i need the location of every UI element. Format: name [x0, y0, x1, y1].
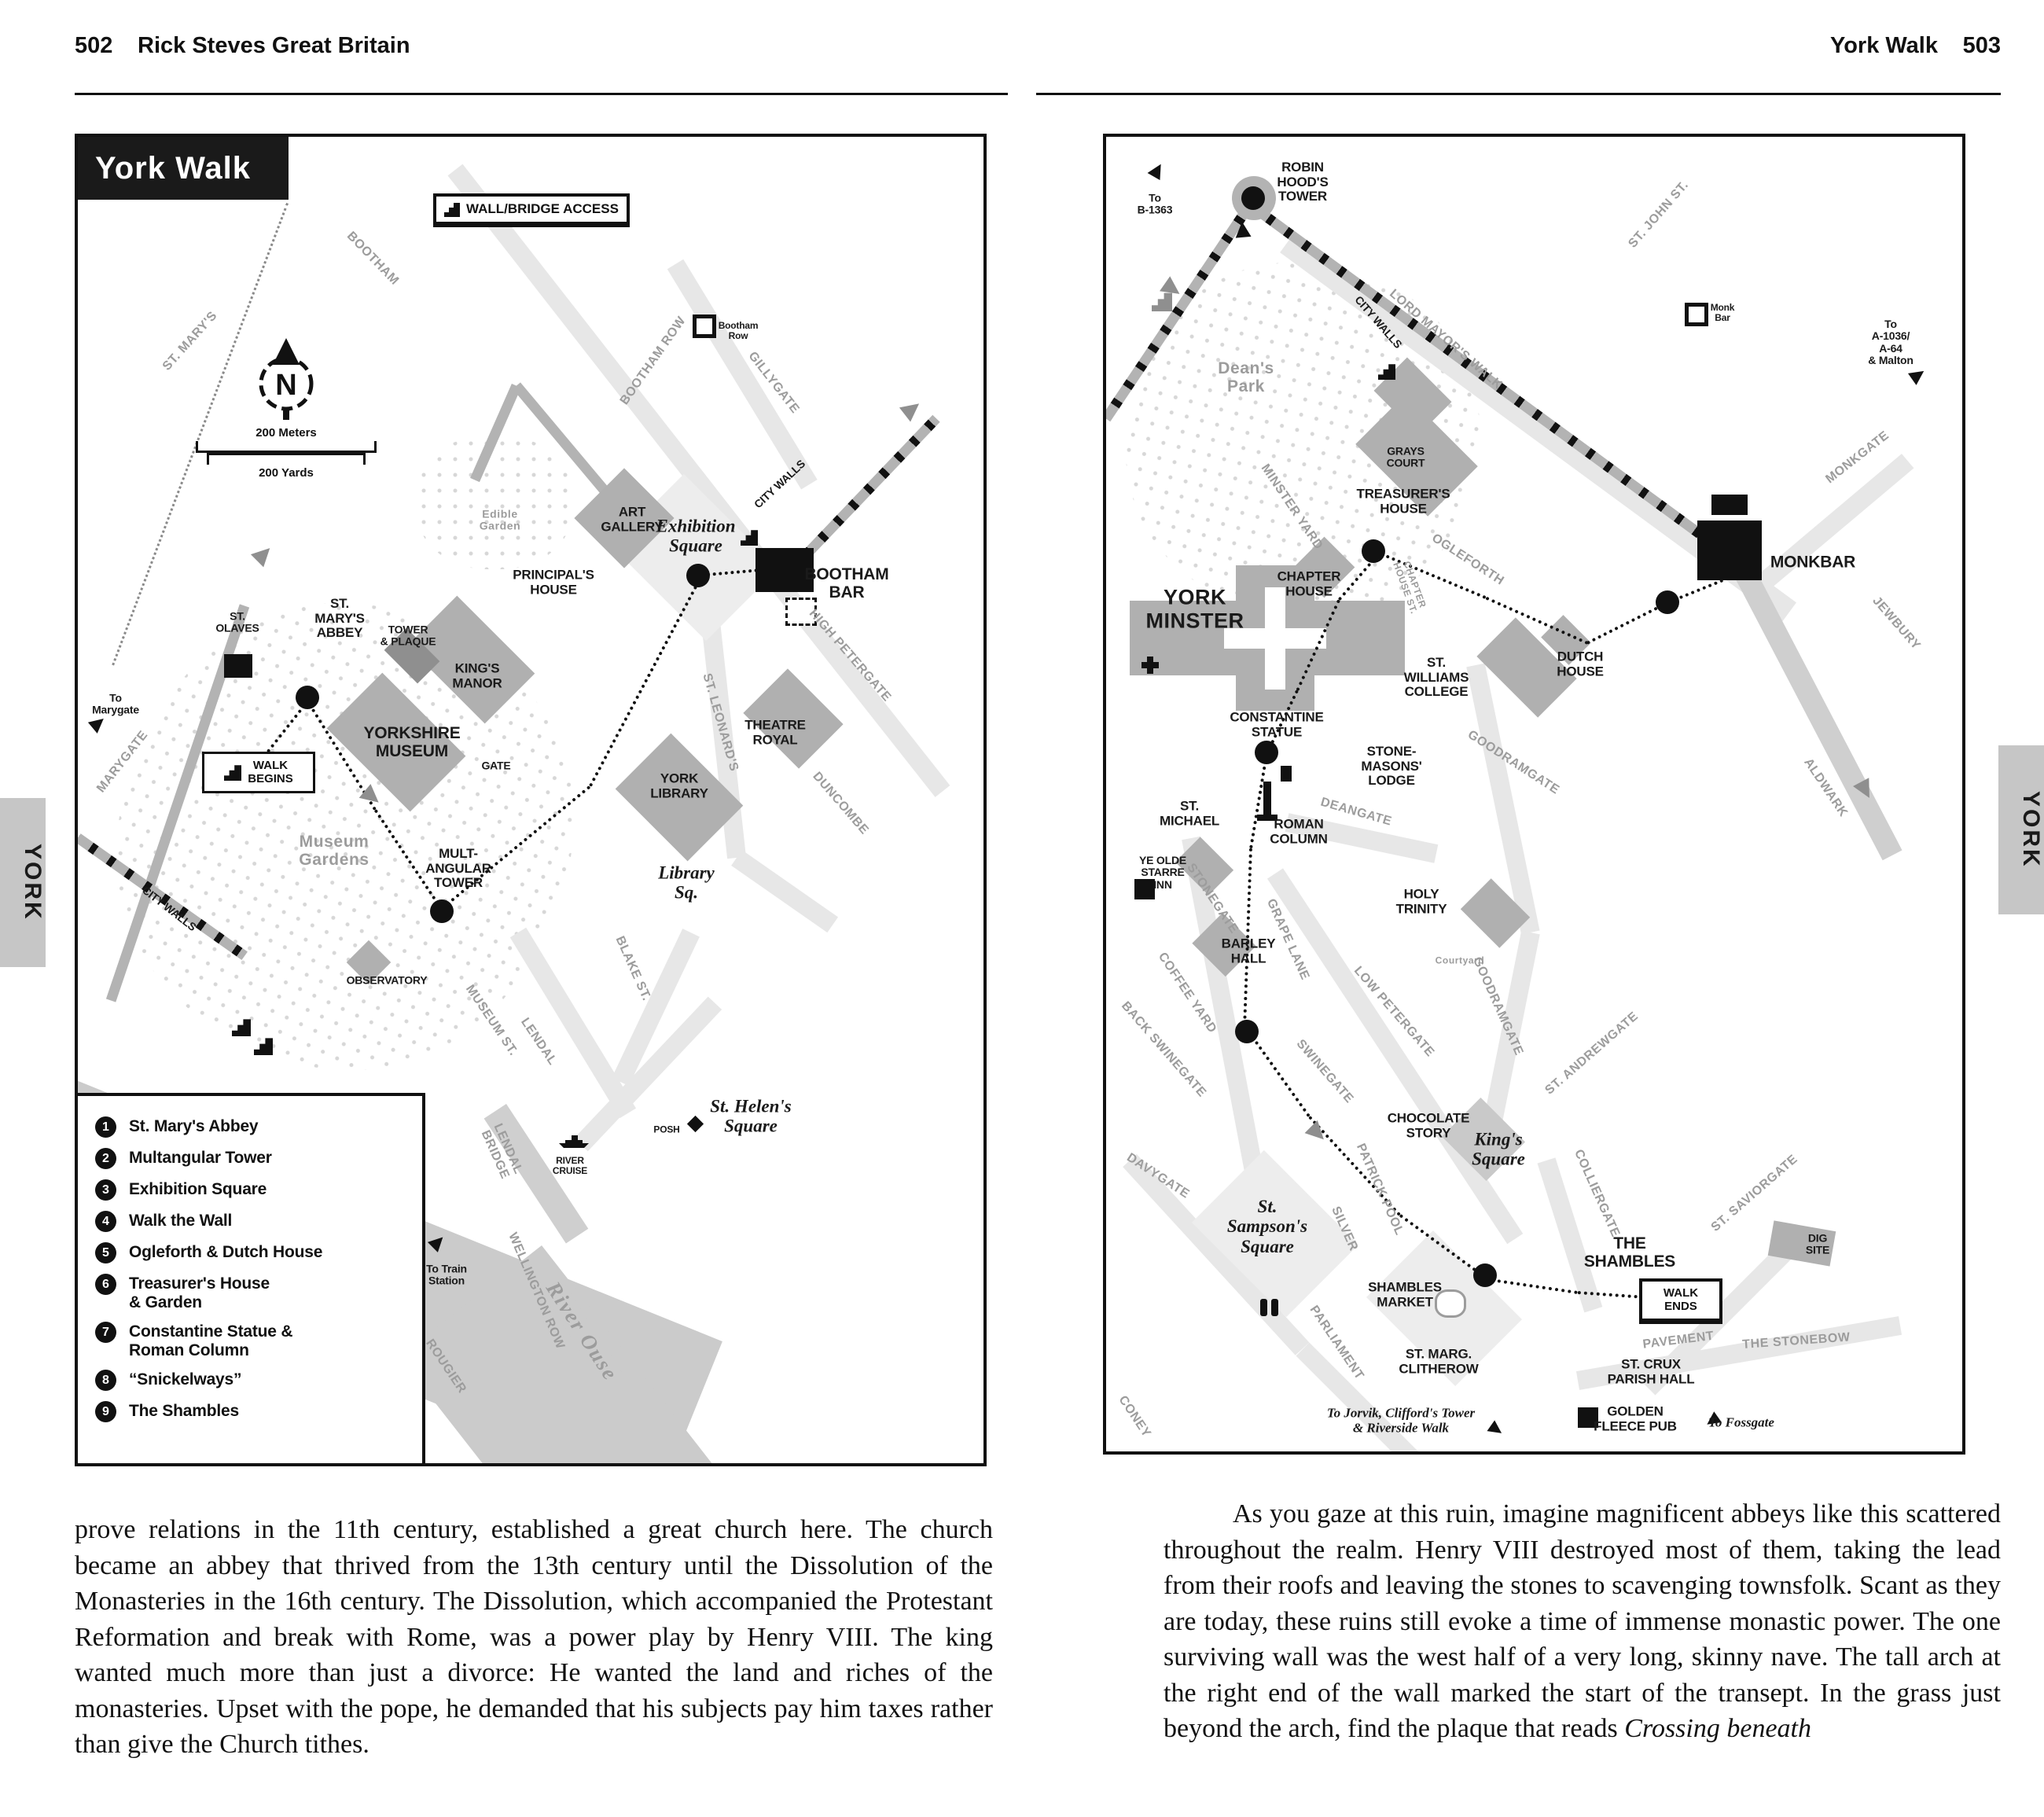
map-label: COLLIERGATE — [1572, 1148, 1623, 1240]
map-label: BLAKE ST. — [612, 934, 653, 1003]
map-label: CONEY — [1116, 1393, 1153, 1440]
map-label: SHAMBLES MARKET — [1368, 1280, 1442, 1309]
map-label: ST. MARY'S ABBEY — [314, 597, 365, 641]
map-label: CONSTANTINE STATUE — [1230, 710, 1323, 739]
legend-item-label: Ogleforth & Dutch House — [129, 1242, 322, 1262]
paragraph-text: As you gaze at this ruin, imagine magnif… — [1164, 1499, 2001, 1743]
map-legend: 1St. Mary's Abbey2Multangular Tower3Exhi… — [78, 1093, 425, 1466]
map-label: ST. MARY'S — [160, 309, 220, 373]
legend-item-label: Treasurer's House & Garden — [129, 1274, 270, 1311]
road-duncombe — [731, 850, 838, 932]
st-olaves-church-icon — [224, 654, 252, 678]
legend-item: 5Ogleforth & Dutch House — [95, 1242, 408, 1263]
legend-number-badge: 9 — [95, 1401, 116, 1422]
legend-item: 6Treasurer's House & Garden — [95, 1274, 408, 1311]
map-label: To A-1036/ A-64 & Malton — [1868, 318, 1913, 367]
walk-stop-dot — [1362, 539, 1385, 563]
walk-stop-dot — [296, 686, 319, 709]
map-label: YORK MINSTER — [1146, 586, 1244, 632]
book-title: Rick Steves Great Britain — [138, 35, 410, 57]
map-label: THEATRE ROYAL — [744, 718, 806, 747]
map-label: Monk Bar — [1711, 303, 1735, 323]
walk-stop-dot — [1255, 741, 1278, 764]
legend-item: 7Constantine Statue & Roman Column — [95, 1322, 408, 1359]
map-label: ST. JOHN ST. — [1626, 178, 1691, 251]
legend-item-label: The Shambles — [129, 1401, 239, 1421]
map-label: THE SHAMBLES — [1584, 1234, 1675, 1271]
legend-number-badge: 2 — [95, 1148, 116, 1169]
route-direction-arrow-icon: ▶ — [1302, 1116, 1334, 1148]
side-tab-left: YORK — [0, 798, 46, 967]
map-label: ST. CRUX PARISH HALL — [1608, 1357, 1695, 1386]
legend-item: 1St. Mary's Abbey — [95, 1116, 408, 1138]
map-label: DIG SITE — [1806, 1233, 1829, 1257]
walk-stop-dot — [1656, 590, 1679, 614]
map-label: To Fossgate — [1708, 1416, 1774, 1431]
legend-item-label: Walk the Wall — [129, 1211, 232, 1230]
map-label: OBSERVATORY — [347, 974, 428, 986]
map-label: TREASURER'S HOUSE — [1357, 487, 1450, 516]
scale-yards-label: 200 Yards — [196, 467, 377, 479]
map-label: HOLY TRINITY — [1396, 887, 1447, 916]
wall-access-legend-text: WALL/BRIDGE ACCESS — [466, 201, 619, 217]
map-label: CHOCOLATE STORY — [1388, 1111, 1470, 1140]
to-b1363-arrow-icon: ▶ — [1143, 158, 1170, 182]
scale-meters-label: 200 Meters — [196, 427, 377, 439]
map-label: ROMAN COLUMN — [1270, 817, 1327, 846]
map-label: YORK LIBRARY — [650, 771, 708, 800]
side-tab-right: YORK — [1998, 745, 2044, 914]
monkbar-building — [1697, 520, 1762, 580]
map-label: MULT- ANGULAR TOWER — [425, 847, 491, 891]
wall-access-stairs-icon — [741, 528, 758, 546]
car-park-icon — [693, 314, 716, 338]
map-label: TOWER & PLAQUE — [380, 624, 436, 649]
edible-garden-area — [416, 436, 573, 569]
map-label: KING'S MANOR — [452, 661, 502, 690]
legend-number-badge: 8 — [95, 1370, 116, 1391]
map-label: POSH — [653, 1124, 679, 1135]
restrooms-icon — [1260, 1299, 1282, 1320]
church-icon — [687, 1116, 704, 1132]
map-label: JEWBURY — [1869, 594, 1923, 653]
map-label: GOODRAMGATE — [1465, 728, 1562, 797]
legend-number-badge: 7 — [95, 1322, 116, 1343]
legend-number-badge: 4 — [95, 1211, 116, 1232]
plaque-inscription: Crossing beneath — [1624, 1714, 1811, 1743]
map-label: BARLEY HALL — [1222, 936, 1276, 966]
map-scale: 200 Meters 200 Yards — [196, 425, 377, 481]
wall-access-stairs-icon — [444, 201, 460, 217]
map-label: GATE — [481, 760, 510, 771]
to-jorvik-arrow-icon: ▶ — [1486, 1416, 1509, 1440]
map-label: DUTCH HOUSE — [1557, 649, 1603, 679]
paragraph: As you gaze at this ruin, imagine magnif… — [1164, 1496, 2001, 1747]
walk-begins-stairs-icon — [224, 763, 241, 781]
walk-stop-dot — [1473, 1263, 1497, 1287]
car-park-icon — [1685, 303, 1708, 326]
map-label: BOOTHAM ROW — [618, 314, 689, 408]
minster-west-cross-icon — [1147, 657, 1153, 674]
walk-stop-dot — [1235, 1020, 1259, 1043]
map-label: MONKBAR — [1770, 553, 1855, 571]
walk-begins-text: WALK BEGINS — [248, 759, 293, 786]
map-label: ART GALLERY — [601, 505, 663, 534]
body-text-left-column: prove relations in the 11th century, est… — [75, 1512, 993, 1763]
map-title: York Walk — [78, 137, 289, 200]
map-label: DUNCOMBE — [810, 770, 871, 837]
compass-icon: N — [252, 335, 320, 421]
walk-ends-text: WALK ENDS — [1664, 1286, 1698, 1314]
paragraph: prove relations in the 11th century, est… — [75, 1512, 993, 1763]
chapter-title: York Walk — [1830, 35, 1938, 57]
map-label: BOOTHAM — [344, 230, 402, 289]
scale-bar-meters — [196, 441, 377, 453]
monkbar-turret — [1711, 495, 1748, 515]
legend-item: 2Multangular Tower — [95, 1148, 408, 1169]
map-label: PRINCIPAL'S HOUSE — [513, 568, 594, 597]
map-label: To B-1363 — [1138, 193, 1173, 217]
wall-access-legend: WALL/BRIDGE ACCESS — [433, 193, 630, 225]
legend-number-badge: 6 — [95, 1274, 116, 1295]
route-direction-arrow-icon: ▶ — [246, 537, 278, 569]
map-label: St. Sampson's Square — [1227, 1197, 1307, 1256]
legend-item-label: “Snickelways” — [129, 1370, 241, 1389]
legend-item: 3Exhibition Square — [95, 1179, 408, 1201]
body-text-right-column: As you gaze at this ruin, imagine magnif… — [1164, 1496, 2001, 1747]
map-label: STONE- MASONS' LODGE — [1361, 745, 1421, 789]
map-label: ST. MARG. CLITHEROW — [1399, 1347, 1478, 1376]
wall-direction-arrow-icon: ▶ — [1229, 221, 1255, 239]
legend-item-label: Constantine Statue & Roman Column — [129, 1322, 292, 1359]
map-label: To Marygate — [92, 693, 139, 717]
legend-item-label: Multangular Tower — [129, 1148, 272, 1168]
header-rule-left — [75, 93, 1008, 95]
map-label: YORKSHIRE MUSEUM — [363, 724, 460, 760]
river-cruise-boat-icon — [559, 1132, 589, 1148]
wall-access-stairs-icon — [254, 1036, 273, 1055]
legend-item: 8“Snickelways” — [95, 1370, 408, 1391]
map-label: SWINEGATE — [1293, 1037, 1356, 1106]
map-label: King's Square — [1472, 1130, 1525, 1170]
map-label: CHAPTER HOUSE — [1277, 569, 1341, 598]
page-number-left: 502 — [75, 35, 112, 57]
map-label: ROBIN HOOD'S TOWER — [1277, 160, 1328, 204]
walk-stop-dot — [430, 899, 454, 923]
map-label: ST. ANDREWGATE — [1542, 1010, 1641, 1098]
minster-cross-stem — [1265, 587, 1285, 690]
legend-number-badge: 1 — [95, 1116, 116, 1138]
wall-access-stairs-icon — [1152, 291, 1172, 311]
legend-item: 9The Shambles — [95, 1401, 408, 1422]
legend-item-label: Exhibition Square — [129, 1179, 267, 1199]
map-label: YE OLDE STARRE INN — [1139, 855, 1186, 891]
map-label: St. Helen's Square — [710, 1097, 792, 1137]
map-label: GRAYS COURT — [1387, 446, 1425, 470]
map-label: BOOTHAM BAR — [804, 565, 888, 601]
map-label: ST. OLAVES — [215, 611, 259, 635]
wall-access-stairs-icon — [232, 1017, 251, 1036]
map-label: ST. WILLIAMS COLLEGE — [1404, 656, 1469, 700]
map-label: RIVER CRUISE — [553, 1156, 587, 1176]
map-label: Exhibition Square — [656, 517, 736, 557]
walk-stop-dot — [686, 564, 710, 587]
map-label: To Train Station — [426, 1263, 467, 1288]
route-direction-arrow-icon: ▶ — [895, 392, 927, 425]
legend-number-badge: 5 — [95, 1242, 116, 1263]
legend-number-badge: 3 — [95, 1179, 116, 1201]
map-label: LENDAL — [518, 1016, 560, 1068]
map-label: Dean's Park — [1218, 359, 1274, 395]
legend-item: 4Walk the Wall — [95, 1211, 408, 1232]
constantine-statue-icon — [1281, 766, 1292, 782]
york-walk-map-east: ▶ ▶ ▶ ▶ ▶ ▶ ▶ ▶ WALK ENDS To B-1363ROBIN… — [1103, 134, 1965, 1455]
map-label: GOLDEN FLEECE PUB — [1594, 1404, 1677, 1433]
walk-begins-box: WALK BEGINS — [202, 752, 315, 793]
map-label: Library Sq. — [658, 863, 715, 903]
map-label: Museum Gardens — [299, 833, 369, 869]
roman-column-icon — [1263, 782, 1271, 817]
header-rule-right — [1036, 93, 2001, 95]
walk-stop-dot — [1241, 186, 1265, 210]
page-number-right: 503 — [1963, 35, 2001, 57]
map-label: To Jorvik, Clifford's Tower & Riverside … — [1327, 1406, 1475, 1435]
wall-access-stairs-icon — [1378, 362, 1395, 380]
svg-text:N: N — [275, 369, 296, 402]
map-label: Bootham Row — [719, 321, 759, 341]
map-label: Edible Garden — [480, 509, 521, 533]
walk-ends-box: WALK ENDS — [1639, 1278, 1722, 1322]
walk-route-segment — [1491, 1278, 1577, 1294]
legend-item-label: St. Mary's Abbey — [129, 1116, 258, 1136]
scale-bar-yards — [207, 453, 366, 465]
book-spread: { "header": { "left_page": "502", "left_… — [0, 0, 2044, 1817]
map-label: PATRICK POOL — [1353, 1142, 1406, 1238]
map-label: ST. MICHAEL — [1160, 799, 1219, 828]
york-walk-map-west: ▶ ▶ ▶ ▶ ▶ WALL/BRIDGE ACCESS WALK BEGINS… — [75, 134, 987, 1466]
